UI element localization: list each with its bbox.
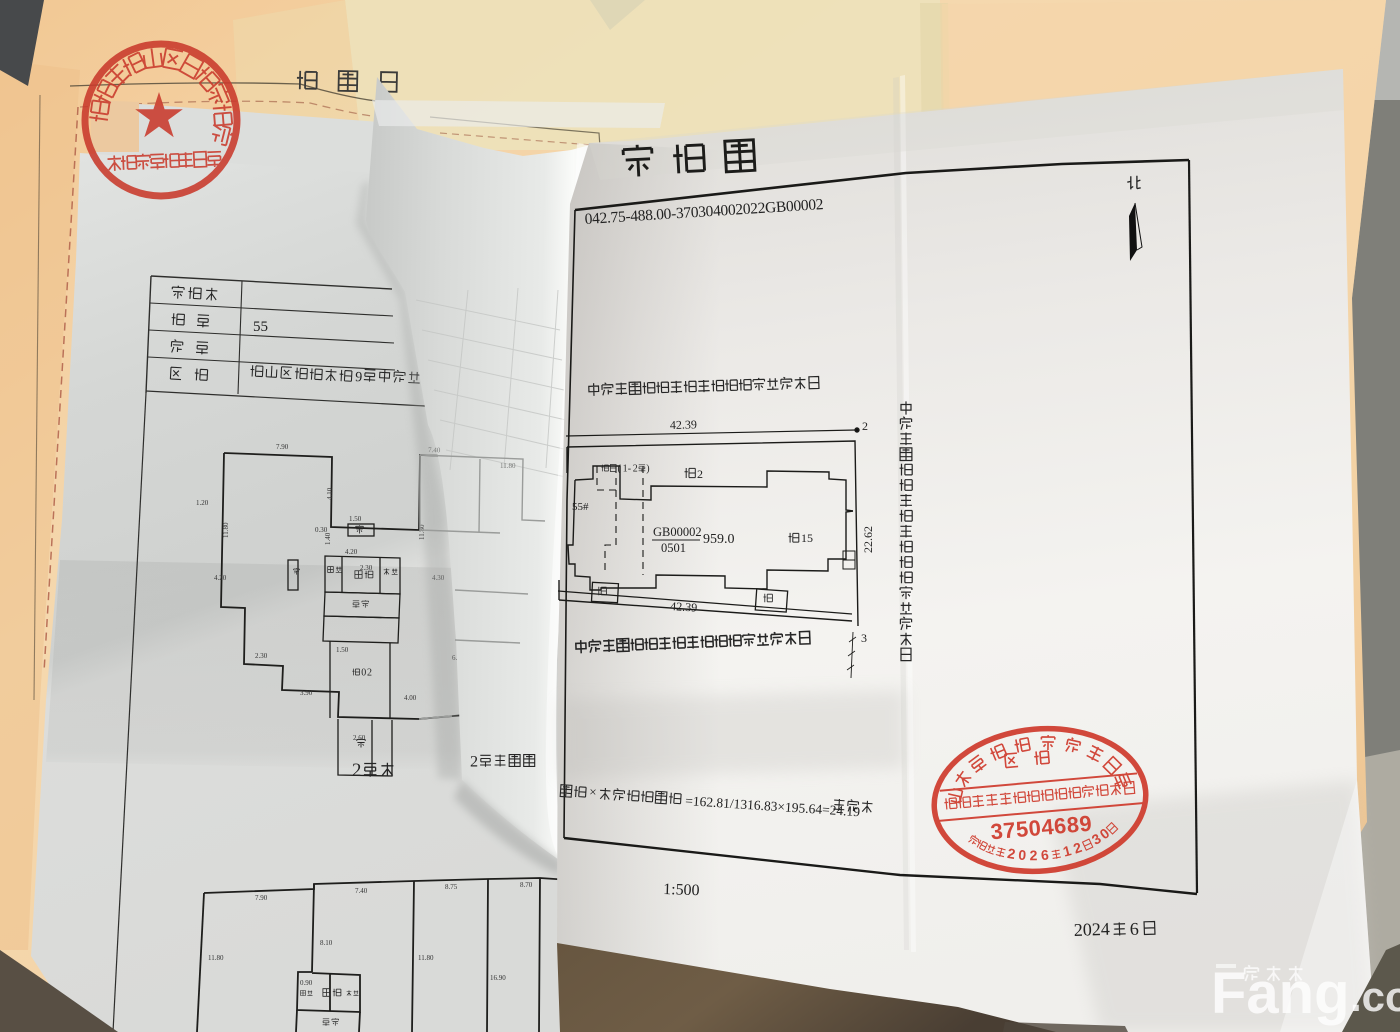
- svg-text:.com: .com: [1350, 973, 1400, 1020]
- svg-text:Fang: Fang: [1211, 961, 1350, 1026]
